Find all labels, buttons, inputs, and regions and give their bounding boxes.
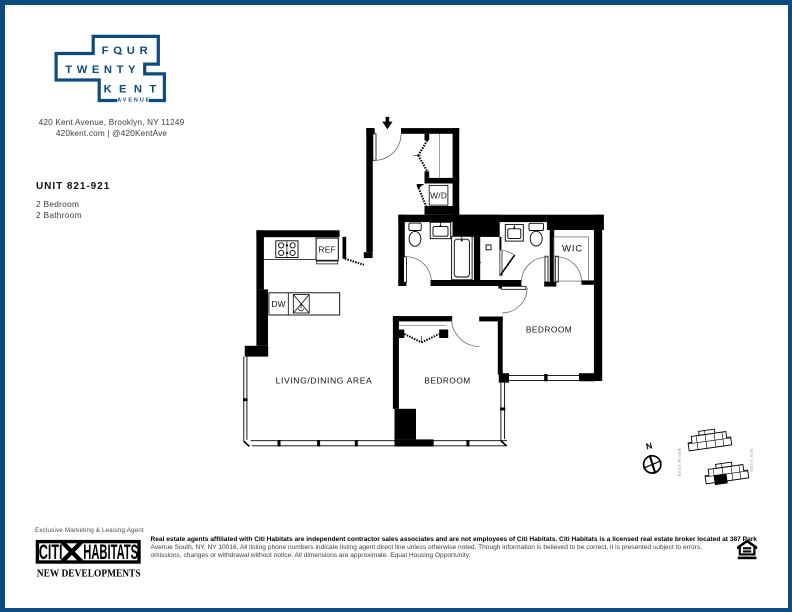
svg-text:N: N xyxy=(645,440,653,451)
svg-text:BEDROOM: BEDROOM xyxy=(424,375,470,385)
svg-text:DW: DW xyxy=(271,299,285,309)
svg-text:REF: REF xyxy=(318,244,336,254)
svg-text:CITI: CITI xyxy=(39,540,63,564)
svg-text:HABITATS: HABITATS xyxy=(83,541,138,564)
svg-text:KENT AVE: KENT AVE xyxy=(749,448,754,471)
svg-text:WIC: WIC xyxy=(562,244,583,255)
svg-text:EAST RIVER: EAST RIVER xyxy=(677,448,682,477)
svg-text:BEDROOM: BEDROOM xyxy=(526,324,572,334)
svg-text:NEW DEVELOPMENTS: NEW DEVELOPMENTS xyxy=(37,568,141,579)
svg-text:LIVING/DINING AREA: LIVING/DINING AREA xyxy=(276,375,373,385)
svg-text:W/D: W/D xyxy=(430,191,447,201)
